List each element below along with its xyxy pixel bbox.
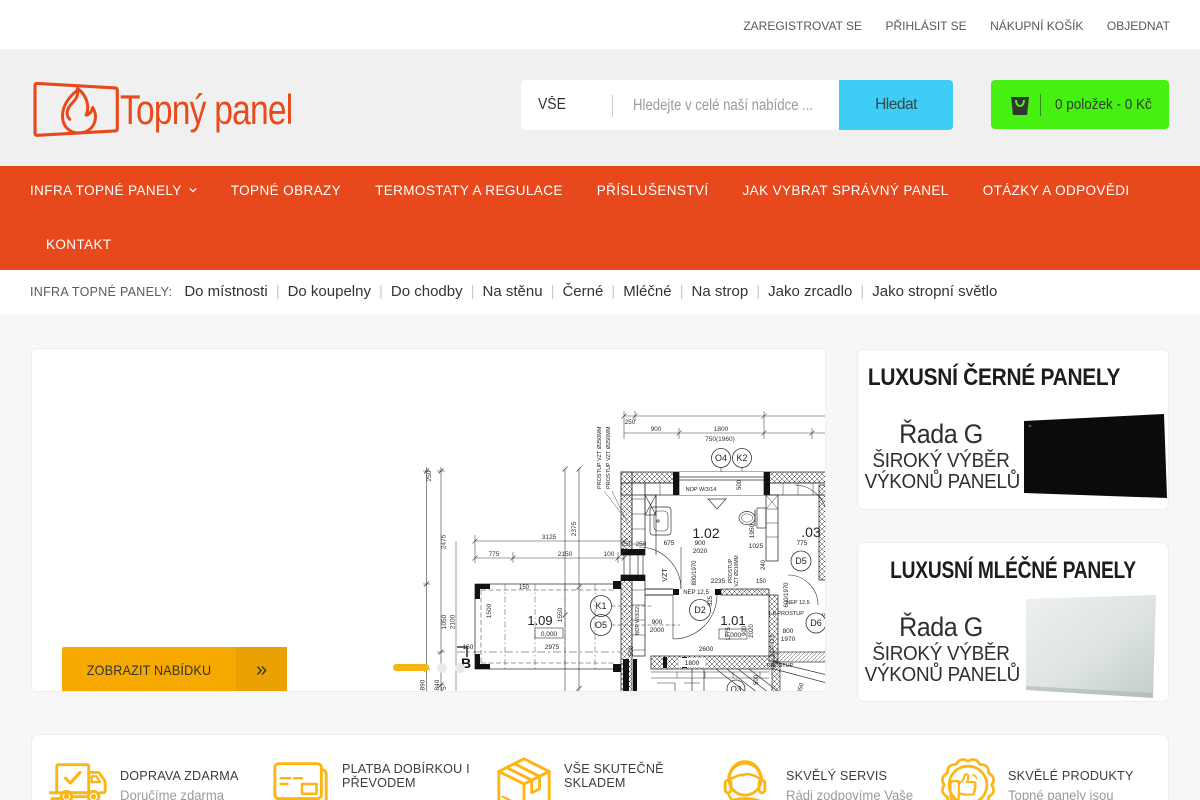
- svg-text:VZT Ø210MM: VZT Ø210MM: [734, 555, 740, 586]
- svg-text:O3: O3: [731, 685, 742, 692]
- svg-text:NOP W/3/14: NOP W/3/14: [686, 487, 717, 493]
- svg-text:775: 775: [489, 551, 500, 558]
- svg-text:2000: 2000: [650, 627, 665, 634]
- svg-text:2375: 2375: [571, 521, 578, 536]
- svg-text:675: 675: [664, 540, 675, 547]
- svg-text:800: 800: [783, 628, 794, 635]
- svg-text:250: 250: [426, 470, 433, 481]
- svg-text:800/1970: 800/1970: [692, 560, 698, 586]
- svg-text:150: 150: [756, 579, 767, 585]
- svg-text:890: 890: [420, 679, 427, 690]
- svg-text:0,000: 0,000: [725, 632, 742, 639]
- svg-text:K2: K2: [736, 453, 747, 463]
- svg-text:2100: 2100: [450, 614, 457, 629]
- svg-text:2020: 2020: [749, 624, 755, 638]
- svg-text:K1: K1: [595, 601, 606, 611]
- svg-text:1950: 1950: [749, 523, 756, 538]
- svg-text:500: 500: [629, 645, 635, 656]
- svg-text:150: 150: [519, 585, 530, 591]
- svg-text:2600: 2600: [699, 646, 714, 653]
- svg-text:PROSTUP VZT Ø250MM: PROSTUP VZT Ø250MM: [597, 426, 603, 489]
- svg-text:NEP 12,5: NEP 12,5: [770, 634, 776, 656]
- svg-text:775: 775: [797, 540, 808, 547]
- svg-text:1025: 1025: [749, 543, 764, 550]
- svg-text:10: 10: [622, 548, 628, 554]
- svg-text:1950: 1950: [796, 682, 805, 692]
- svg-text:VZT: VZT: [822, 613, 826, 619]
- svg-text:.03: .03: [801, 524, 821, 540]
- svg-text:NEP 12,5: NEP 12,5: [683, 590, 709, 596]
- svg-text:D2: D2: [694, 605, 706, 615]
- svg-text:2020: 2020: [693, 548, 708, 555]
- svg-text:2975: 2975: [545, 644, 560, 651]
- svg-text:PROSTUP: PROSTUP: [767, 663, 794, 669]
- svg-text:750(1960): 750(1960): [705, 436, 735, 443]
- svg-text:250: 250: [625, 419, 636, 426]
- svg-text:75: 75: [441, 686, 448, 692]
- svg-text:900: 900: [695, 540, 706, 547]
- svg-text:D6: D6: [810, 618, 822, 628]
- svg-text:1050: 1050: [441, 614, 448, 629]
- svg-text:1970: 1970: [781, 636, 796, 643]
- svg-text:VZT: VZT: [662, 568, 669, 582]
- svg-text:1.02: 1.02: [692, 525, 719, 541]
- svg-text:NEP 12,5: NEP 12,5: [786, 600, 809, 606]
- svg-text:100: 100: [604, 551, 615, 558]
- svg-text:900: 900: [651, 426, 662, 433]
- svg-text:1 8 PROSTUP: 1 8 PROSTUP: [768, 611, 804, 617]
- svg-text:500: 500: [737, 479, 743, 490]
- svg-text:PROSTUP VZT Ø250MM: PROSTUP VZT Ø250MM: [606, 426, 612, 489]
- svg-text:O5: O5: [595, 620, 607, 630]
- svg-text:2475: 2475: [441, 534, 448, 549]
- svg-text:1800: 1800: [714, 426, 729, 433]
- svg-text:2235: 2235: [711, 578, 726, 585]
- svg-text:1500: 1500: [486, 603, 493, 618]
- svg-text:1.01: 1.01: [720, 613, 745, 628]
- svg-text:1800: 1800: [685, 660, 700, 667]
- svg-text:D5: D5: [795, 556, 807, 566]
- svg-text:1.09: 1.09: [527, 613, 552, 628]
- svg-text:0,000: 0,000: [541, 631, 558, 638]
- svg-text:3125: 3125: [542, 534, 557, 541]
- svg-text:NOP W/3/22: NOP W/3/22: [635, 607, 641, 635]
- svg-text:O4: O4: [715, 453, 727, 463]
- svg-text:840: 840: [434, 679, 441, 690]
- svg-text:500: 500: [754, 674, 760, 685]
- svg-text:2150: 2150: [558, 551, 573, 558]
- svg-text:240: 240: [761, 559, 767, 570]
- svg-text:1550: 1550: [557, 607, 564, 622]
